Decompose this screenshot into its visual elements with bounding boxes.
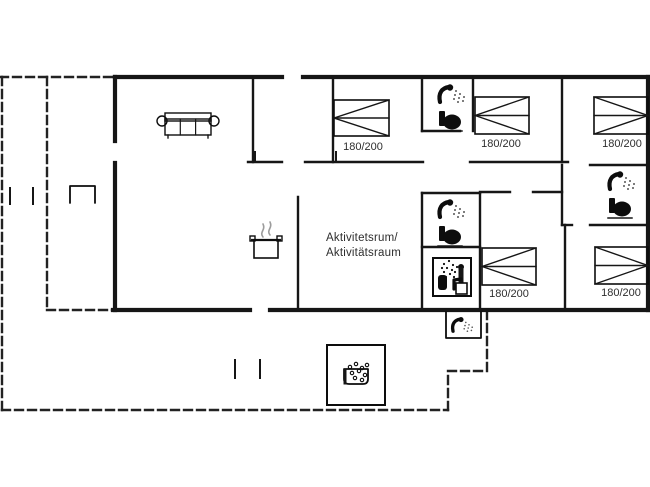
bed-size-label: 180/200 [481,138,521,150]
bed-size-label: 180/200 [601,287,641,299]
activity-room-label: Aktivitetsrum/ Aktivitätsraum [326,231,401,261]
floor-plan-page: 180/200180/200180/200180/200180/200 Akti… [0,0,650,487]
activity-room-label-line1: Aktivitetsrum/ [326,231,401,246]
bed-size-label: 180/200 [343,141,383,153]
activity-room-label-line2: Aktivitätsraum [326,246,401,261]
bed-size-label: 180/200 [489,288,529,300]
bed-size-label: 180/200 [602,138,642,150]
floor-plan-svg: 180/200180/200180/200180/200180/200 [0,0,650,487]
